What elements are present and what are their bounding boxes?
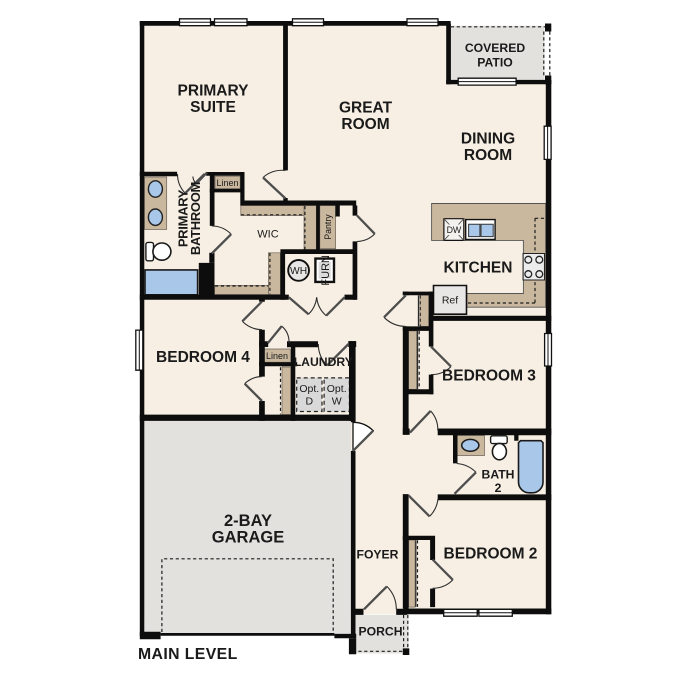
svg-text:D: D [306, 395, 314, 407]
svg-text:MAIN LEVEL: MAIN LEVEL [138, 646, 238, 663]
svg-text:2: 2 [495, 481, 502, 495]
svg-text:PRIMARY: PRIMARY [178, 82, 250, 99]
svg-text:Linen: Linen [216, 178, 238, 188]
svg-text:BEDROOM 4: BEDROOM 4 [156, 349, 250, 366]
svg-text:BEDROOM 3: BEDROOM 3 [442, 368, 536, 385]
svg-text:ROOM: ROOM [464, 147, 512, 164]
svg-text:DINING: DINING [461, 131, 515, 148]
svg-text:COVERED: COVERED [465, 41, 525, 55]
svg-text:Linen: Linen [266, 351, 288, 361]
svg-text:Opt.: Opt. [299, 383, 319, 395]
svg-text:Pantry: Pantry [323, 214, 333, 240]
svg-text:BEDROOM 2: BEDROOM 2 [444, 546, 538, 563]
svg-text:ROOM: ROOM [341, 116, 389, 133]
svg-text:PATIO: PATIO [477, 56, 512, 70]
svg-text:FURN: FURN [320, 255, 332, 286]
svg-text:PORCH: PORCH [358, 625, 402, 639]
svg-text:Opt.: Opt. [327, 383, 347, 395]
svg-text:FOYER: FOYER [357, 548, 399, 562]
svg-text:SUITE: SUITE [190, 99, 236, 116]
svg-text:2-BAY: 2-BAY [224, 512, 272, 530]
svg-text:WIC: WIC [257, 228, 278, 240]
svg-text:WH: WH [290, 266, 307, 277]
svg-text:DW: DW [447, 225, 462, 235]
svg-text:W: W [332, 395, 342, 407]
svg-text:BATH: BATH [482, 468, 515, 482]
svg-text:Ref: Ref [442, 294, 458, 306]
svg-text:GREAT: GREAT [339, 99, 393, 116]
svg-text:GARAGE: GARAGE [212, 528, 284, 546]
svg-text:BATHROOM: BATHROOM [188, 182, 203, 255]
svg-text:KITCHEN: KITCHEN [444, 260, 513, 277]
svg-text:LAUNDRY: LAUNDRY [294, 355, 353, 369]
